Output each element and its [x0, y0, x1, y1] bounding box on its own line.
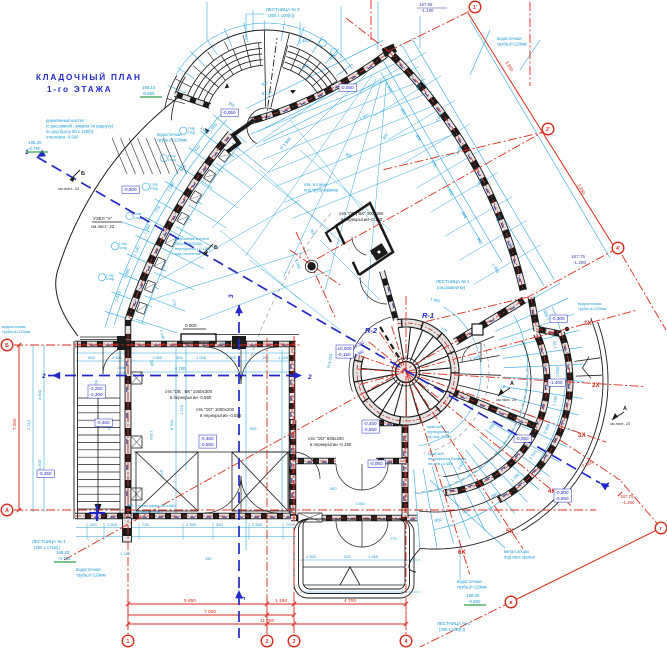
- svg-text:труба,d=120мм: труба,d=120мм: [578, 306, 607, 311]
- svg-text:в перекрытии -0.550: в перекрытии -0.550: [170, 395, 212, 400]
- svg-text:Б: Б: [81, 171, 85, 177]
- svg-text:-3,250: -3,250: [90, 386, 103, 391]
- svg-text:1 480: 1 480: [117, 366, 126, 370]
- svg-text:отм.верха -0.500: отм.верха -0.500: [46, 135, 79, 140]
- svg-text:R-1: R-1: [422, 311, 434, 320]
- svg-text:ЛЕСТНИЦА № 1: ЛЕСТНИЦА № 1: [436, 279, 470, 284]
- svg-text:4 700: 4 700: [344, 598, 356, 604]
- svg-text:под свес крыши: под свес крыши: [504, 555, 535, 560]
- svg-text:2 550: 2 550: [186, 522, 197, 527]
- svg-text:390: 390: [216, 522, 223, 527]
- svg-text:отв."ОВ ; ВК" 1050х300: отв."ОВ ; ВК" 1050х300: [165, 389, 213, 394]
- svg-text:1 050: 1 050: [555, 366, 560, 377]
- svg-text:под отопление: под отопление: [175, 252, 201, 256]
- svg-text:(с расшивкой , викром по радиу: (с расшивкой , викром по радиусу): [46, 124, 114, 129]
- svg-text:под трубу камина: под трубу камина: [304, 188, 339, 193]
- svg-text:а 500: а 500: [37, 389, 42, 400]
- svg-text:-0,050: -0,050: [516, 436, 529, 441]
- svg-text:905: 905: [250, 426, 257, 431]
- svg-text:водосточная: водосточная: [497, 36, 521, 41]
- svg-text:705: 705: [286, 522, 293, 527]
- svg-text:1: 1: [606, 482, 610, 489]
- svg-text:-0,450: -0,450: [364, 421, 377, 426]
- svg-text:1 140: 1 140: [120, 551, 131, 556]
- svg-text:168.20: 168.20: [28, 140, 42, 145]
- svg-text:метал.опоры: метал.опоры: [504, 549, 529, 554]
- svg-text:300: 300: [344, 554, 351, 559]
- svg-text:-0,450: -0,450: [97, 420, 110, 425]
- svg-text:2 350: 2 350: [112, 355, 123, 360]
- svg-text:-0,150: -0,150: [338, 352, 351, 357]
- svg-text:УЗЕЛ "А": УЗЕЛ "А": [93, 216, 113, 221]
- svg-text:углубление в плите: углубление в плите: [175, 237, 209, 241]
- svg-text:(см раздел ЮК): (см раздел ЮК): [133, 509, 163, 514]
- svg-text:отв."ЭО" 1000х200: отв."ЭО" 1000х200: [196, 407, 235, 412]
- svg-text:-1,400: -1,400: [550, 380, 563, 385]
- svg-text:1 950: 1 950: [306, 554, 317, 559]
- svg-text:-0,050: -0,050: [223, 110, 236, 115]
- svg-text:4': 4': [616, 246, 620, 252]
- svg-text:перекрытия (-0.150): перекрытия (-0.150): [175, 247, 211, 251]
- svg-text:-0,050: -0,050: [370, 461, 383, 466]
- svg-text:-0,500: -0,500: [124, 187, 137, 192]
- svg-text:труба,d=120мм: труба,d=120мм: [497, 42, 527, 47]
- svg-text:168.00: 168.00: [466, 593, 480, 598]
- svg-text:-0,450: -0,450: [39, 471, 52, 476]
- svg-text:1: 1: [127, 639, 130, 645]
- svg-text:1 200: 1 200: [149, 430, 154, 441]
- svg-text:150: 150: [262, 355, 269, 360]
- svg-text:3: 3: [228, 294, 235, 298]
- svg-text:2': 2': [546, 127, 550, 133]
- svg-text:2X: 2X: [592, 382, 600, 389]
- svg-text:-1.100: -1.100: [421, 8, 434, 13]
- svg-text:-0,550: -0,550: [364, 427, 377, 432]
- svg-text:3 под: 3 под: [119, 246, 127, 250]
- svg-text:-0,050: -0,050: [341, 85, 354, 90]
- svg-text:4 500: 4 500: [37, 459, 42, 470]
- svg-text:водосточная: водосточная: [157, 132, 181, 137]
- svg-text:по дер.брусу 50 х 150(h): по дер.брусу 50 х 150(h): [46, 129, 94, 134]
- svg-text:2: 2: [266, 639, 269, 645]
- svg-text:53.4°: 53.4°: [262, 91, 272, 96]
- svg-text:675: 675: [159, 470, 164, 477]
- svg-text:200: 200: [90, 522, 97, 527]
- svg-text:300: 300: [176, 355, 183, 360]
- svg-text:3 под: 3 под: [187, 131, 195, 135]
- svg-text:45.0°: 45.0°: [302, 38, 312, 43]
- svg-text:3: 3: [240, 596, 247, 600]
- svg-text:на отм. 3.280: на отм. 3.280: [427, 434, 452, 439]
- svg-text:А: А: [623, 406, 627, 412]
- svg-text:900: 900: [88, 355, 95, 360]
- svg-text:водосточная: водосточная: [457, 579, 481, 584]
- svg-text:1 600: 1 600: [107, 522, 118, 527]
- svg-text:3 под: 3 под: [106, 277, 114, 281]
- svg-text:1 000: 1 000: [196, 355, 207, 360]
- svg-text:2 550: 2 550: [252, 522, 263, 527]
- svg-text:в перекрытии -0.550: в перекрытии -0.550: [200, 413, 242, 418]
- svg-text:2: 2: [307, 374, 312, 381]
- svg-text:-0,300: -0,300: [552, 316, 565, 321]
- svg-text:-1.200: -1.200: [573, 260, 586, 265]
- svg-text:Б: Б: [214, 245, 218, 251]
- svg-text:(см.развертку): (см.развертку): [437, 285, 466, 290]
- svg-text:1 050: 1 050: [355, 501, 366, 506]
- svg-text:R-2: R-2: [365, 326, 378, 335]
- svg-text:1 200: 1 200: [117, 371, 126, 375]
- svg-text:1X: 1X: [584, 320, 592, 327]
- svg-text:6 700: 6 700: [175, 366, 186, 371]
- svg-text:-0.850: -0.850: [142, 91, 155, 96]
- svg-text:167.85: 167.85: [419, 2, 433, 7]
- svg-text:779: 779: [390, 536, 397, 541]
- svg-text:168.20: 168.20: [56, 550, 70, 555]
- svg-text:в перекрытии -0.150: в перекрытии -0.150: [341, 217, 383, 222]
- svg-text:ЛЕСТНИЦА № 4: ЛЕСТНИЦА № 4: [32, 539, 66, 544]
- svg-text:деревянный настил: деревянный настил: [46, 118, 85, 123]
- svg-text:5 850: 5 850: [184, 598, 196, 604]
- svg-text:см.лист- 24: см.лист- 24: [58, 186, 80, 191]
- svg-text:8 700: 8 700: [169, 419, 174, 430]
- svg-text:отв."ОВ | ВК" 300х300: отв."ОВ | ВК" 300х300: [339, 211, 384, 216]
- svg-text:3: 3: [293, 639, 296, 645]
- svg-text:труба,d=120мм: труба,d=120мм: [157, 138, 187, 143]
- svg-text:Б: Б: [5, 343, 9, 349]
- svg-text:3 под: 3 под: [150, 186, 158, 190]
- svg-text:150: 150: [205, 556, 212, 561]
- svg-text:-0.750: -0.750: [28, 146, 41, 151]
- svg-text:отв."ЭО" 935х200: отв."ЭО" 935х200: [308, 436, 344, 441]
- svg-text:-0,500: -0,500: [556, 490, 569, 495]
- svg-text:735: 735: [142, 522, 149, 527]
- svg-text:4: 4: [405, 639, 408, 645]
- svg-text:1-го ЭТАЖА: 1-го ЭТАЖА: [47, 85, 112, 94]
- svg-text:3X: 3X: [578, 432, 586, 439]
- svg-text:(300 х 150(h)): (300 х 150(h)): [439, 627, 466, 632]
- svg-text:ЛЕСТНИЦА № 3: ЛЕСТНИЦА № 3: [266, 7, 300, 12]
- svg-text:А: А: [510, 381, 514, 387]
- svg-text:в: в: [509, 600, 512, 606]
- svg-text:на отм. 4.550: на отм. 4.550: [428, 461, 453, 466]
- svg-text:(300 х 100(h)): (300 х 100(h)): [268, 13, 295, 18]
- svg-text:труба,d=120мм: труба,d=120мм: [76, 573, 106, 578]
- svg-text:920: 920: [220, 341, 227, 346]
- svg-text:труба,d=120мм: труба,d=120мм: [457, 585, 487, 590]
- svg-text:-0.750: -0.750: [58, 556, 71, 561]
- svg-text:900х300х300(h): 900х300х300(h): [175, 242, 203, 246]
- svg-text:1 965: 1 965: [368, 554, 379, 559]
- svg-text:167.75: 167.75: [571, 254, 585, 259]
- svg-text:2 210: 2 210: [26, 419, 31, 430]
- svg-text:5X: 5X: [506, 528, 514, 535]
- svg-text:7 000: 7 000: [204, 609, 216, 615]
- svg-text:±0,000: ±0,000: [338, 346, 352, 351]
- svg-text:в перекрытии -0.150: в перекрытии -0.150: [310, 442, 352, 447]
- svg-text:167.75: 167.75: [620, 494, 634, 499]
- svg-text:водосточная: водосточная: [76, 567, 100, 572]
- svg-text:-0,450: -0,450: [201, 436, 214, 441]
- svg-text:-0.950: -0.950: [468, 599, 481, 604]
- svg-text:-3,300: -3,300: [90, 392, 103, 397]
- svg-text:см.лист- 23: см.лист- 23: [496, 398, 516, 402]
- svg-text:-1.200: -1.200: [622, 500, 635, 505]
- svg-text:-0,550: -0,550: [201, 442, 214, 447]
- svg-text:см.лист- 23: см.лист- 23: [610, 422, 630, 426]
- svg-text:168.10: 168.10: [142, 85, 156, 90]
- svg-text:11 700: 11 700: [260, 618, 275, 624]
- svg-text:отв. в стене: отв. в стене: [304, 182, 328, 187]
- svg-text:1': 1': [473, 5, 477, 11]
- svg-text:КЛАДОЧНЫЙ ПЛАН: КЛАДОЧНЫЙ ПЛАН: [36, 71, 142, 82]
- svg-text:см.лист- 22: см.лист- 22: [91, 224, 115, 229]
- svg-text:2: 2: [41, 373, 46, 380]
- svg-text:1 150: 1 150: [275, 598, 287, 604]
- svg-text:950: 950: [330, 486, 337, 491]
- svg-text:1 470: 1 470: [179, 404, 184, 415]
- svg-text:1 150: 1 150: [278, 355, 289, 360]
- svg-text:0.000: 0.000: [185, 323, 197, 328]
- svg-text:А: А: [5, 508, 9, 514]
- svg-text:6X: 6X: [458, 549, 466, 556]
- svg-text:ЖБ. стойки рамы 230х280: ЖБ. стойки рамы 230х280: [127, 503, 176, 508]
- svg-text:-0,550: -0,550: [556, 496, 569, 501]
- svg-text:ЛЕСТНИЦА № 2: ЛЕСТНИЦА № 2: [437, 621, 471, 626]
- svg-text:7.000: 7.000: [12, 418, 17, 430]
- svg-text:труба,d=120мм: труба,d=120мм: [2, 329, 31, 334]
